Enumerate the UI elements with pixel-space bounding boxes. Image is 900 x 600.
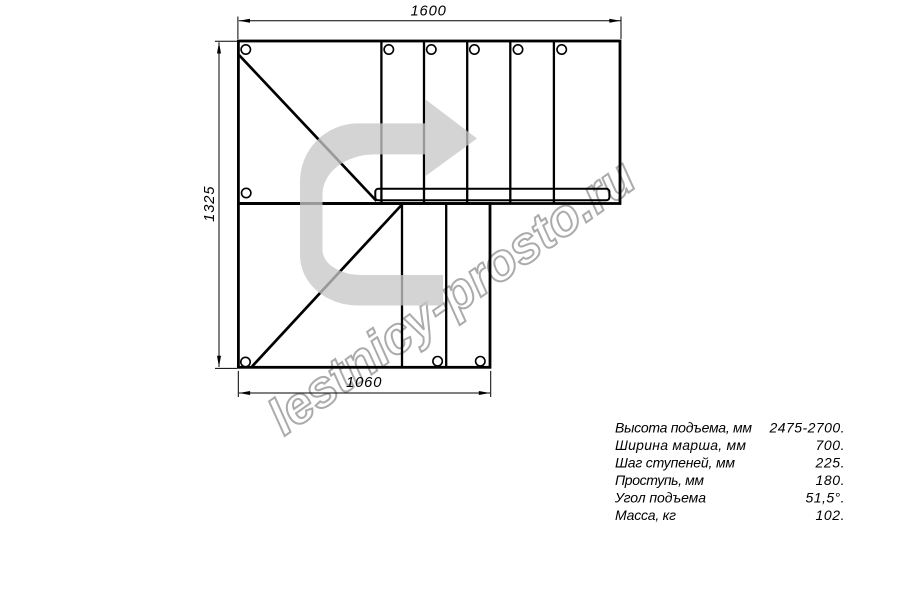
svg-text:225.: 225. bbox=[815, 455, 845, 471]
svg-text:2475-2700.: 2475-2700. bbox=[769, 420, 845, 436]
svg-text:Проступь, мм: Проступь, мм bbox=[615, 472, 704, 488]
svg-text:1325: 1325 bbox=[202, 186, 218, 222]
svg-text:Шаг ступеней, мм: Шаг ступеней, мм bbox=[615, 455, 735, 471]
svg-text:1060: 1060 bbox=[346, 375, 382, 391]
svg-text:Ширина марша, мм: Ширина марша, мм bbox=[615, 437, 746, 453]
svg-text:Высота подъема, мм: Высота подъема, мм bbox=[615, 420, 752, 436]
svg-text:700.: 700. bbox=[816, 437, 845, 453]
svg-text:1600: 1600 bbox=[410, 4, 446, 20]
svg-text:51,5°.: 51,5°. bbox=[806, 490, 845, 506]
svg-text:Масса, кг: Масса, кг bbox=[615, 507, 676, 523]
svg-text:Угол подъема: Угол подъема bbox=[614, 490, 706, 506]
svg-text:102.: 102. bbox=[816, 507, 845, 523]
svg-text:180.: 180. bbox=[816, 472, 845, 488]
